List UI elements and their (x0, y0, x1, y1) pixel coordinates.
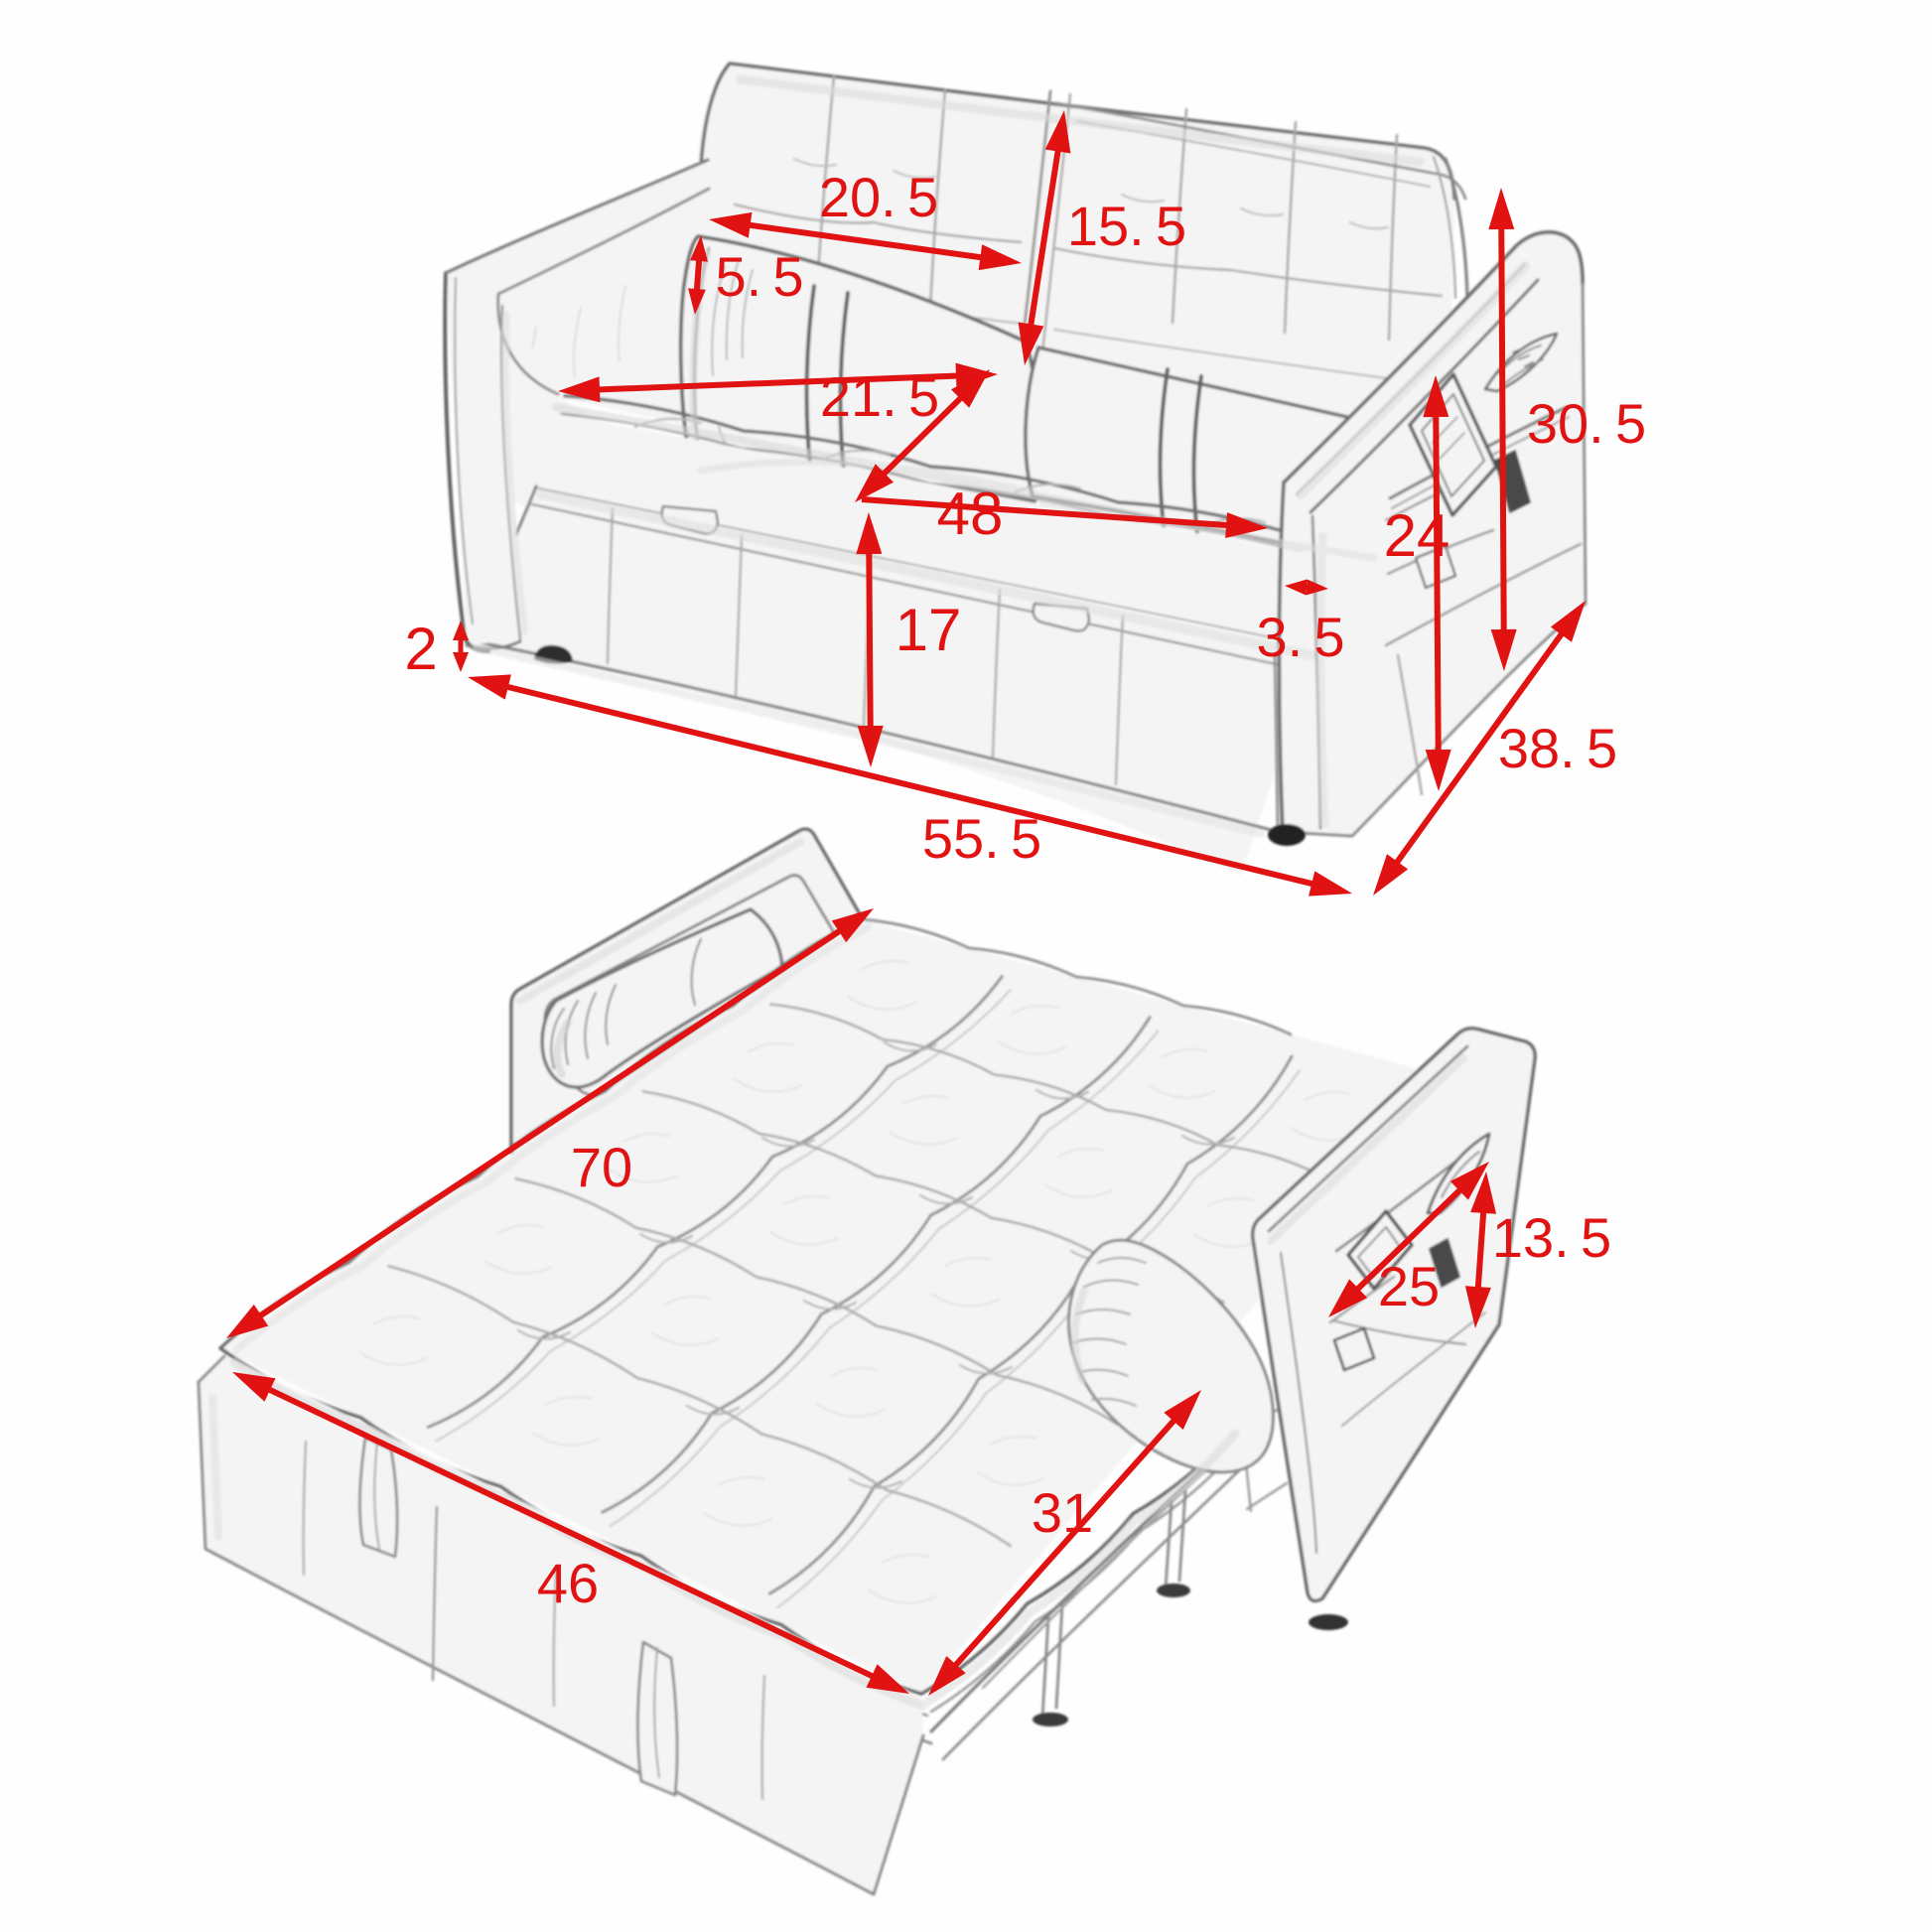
svg-text:38. 5: 38. 5 (1498, 717, 1617, 779)
svg-text:21. 5: 21. 5 (820, 365, 939, 428)
svg-text:55. 5: 55. 5 (922, 807, 1041, 870)
svg-text:25: 25 (1378, 1255, 1440, 1317)
svg-text:20. 5: 20. 5 (819, 166, 938, 228)
svg-text:3. 5: 3. 5 (1256, 606, 1344, 668)
svg-text:5. 5: 5. 5 (715, 245, 803, 308)
svg-text:30. 5: 30. 5 (1527, 392, 1646, 455)
svg-text:2: 2 (404, 616, 437, 682)
svg-text:13. 5: 13. 5 (1492, 1206, 1611, 1269)
svg-text:31: 31 (1032, 1481, 1093, 1544)
svg-text:46: 46 (537, 1552, 599, 1614)
svg-text:48: 48 (937, 481, 1004, 547)
svg-text:17: 17 (896, 597, 962, 663)
svg-text:15. 5: 15. 5 (1067, 195, 1186, 257)
svg-text:70: 70 (571, 1136, 632, 1198)
svg-text:24: 24 (1384, 502, 1450, 569)
